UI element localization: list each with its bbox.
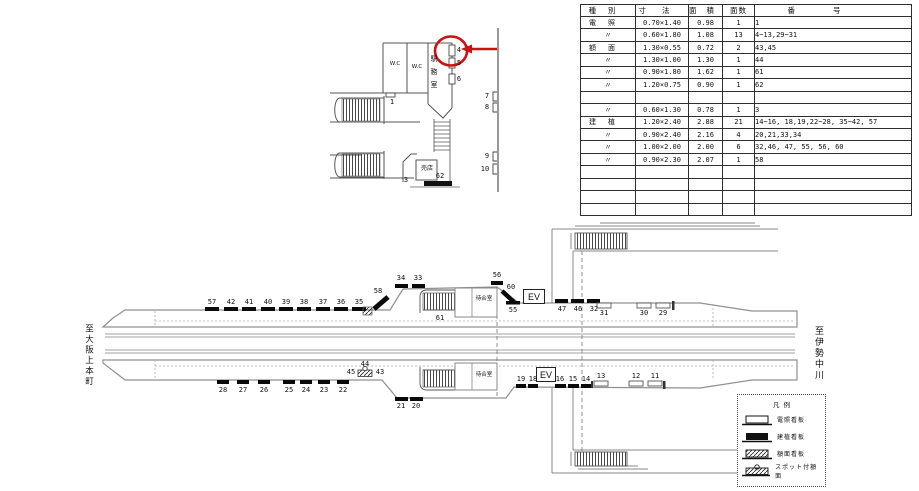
- table-cell: 〃: [581, 66, 636, 78]
- destination-label-right: 至伊勢中川: [813, 326, 822, 381]
- legend-label: スポット付額面: [775, 462, 821, 480]
- sign-label-32: 32: [590, 306, 598, 313]
- sign-label-8: 8: [485, 104, 489, 111]
- sign-label-1: 1: [390, 99, 394, 106]
- sign-label-5: 5: [457, 60, 461, 67]
- sign-label-40: 40: [264, 299, 272, 306]
- sign-label-7: 7: [485, 93, 489, 100]
- table-cell: 0.60×1.80: [636, 29, 689, 41]
- concourse-stairs-lower: [335, 151, 384, 179]
- sign-label-22: 22: [339, 387, 347, 394]
- sign-label-24: 24: [302, 387, 310, 394]
- table-cell: 額面: [581, 41, 636, 53]
- legend-item-spotlight: スポット付額面: [742, 462, 821, 479]
- legend-item-standing: 建植看板: [742, 428, 821, 445]
- station-sign-layout-drawing: 種別 寸法 面積 面数 番号 電照0.70×1.400.9811〃0.60×1.…: [0, 0, 919, 491]
- legend-title: 凡例: [746, 399, 821, 409]
- table-cell: [636, 91, 689, 103]
- waiting-room-bottom-label: 待合室: [476, 373, 493, 379]
- table-row: 〃0.90×1.801.62161: [581, 66, 912, 78]
- table-cell: [755, 203, 912, 215]
- table-cell: 〃: [581, 29, 636, 41]
- table-cell: [723, 191, 755, 203]
- edge-sign-marks-7-10: [493, 92, 497, 174]
- table-cell: 0.90×2.30: [636, 153, 689, 165]
- table-cell: 4~13,29~31: [755, 29, 912, 41]
- sign-58-diagonal-bar: [374, 297, 388, 309]
- sign-label-33: 33: [414, 275, 422, 282]
- room-label-kiosk: 売店: [421, 166, 433, 172]
- table-header-type: 種別: [581, 5, 636, 17]
- sign-label-11: 11: [651, 373, 659, 380]
- frame-sign-icon: [742, 448, 772, 460]
- tick-mark: [672, 301, 675, 310]
- elevator-box-bottom: EV: [536, 367, 556, 382]
- table-cell: [723, 178, 755, 190]
- table-cell: 2: [723, 41, 755, 53]
- sign-label-42: 42: [227, 299, 235, 306]
- table-cell: 13: [723, 29, 755, 41]
- room-label-wc-2: W.C: [412, 65, 422, 71]
- destination-label-left: 至大阪上本町: [84, 324, 93, 387]
- sign-label-12: 12: [632, 373, 640, 380]
- table-cell: 43,45: [755, 41, 912, 53]
- table-cell: 1.62: [689, 66, 723, 78]
- sign-label-45: 45: [347, 369, 355, 376]
- table-cell: [689, 191, 723, 203]
- table-row: 額面1.30×0.550.72243,45: [581, 41, 912, 53]
- table-cell: 1: [723, 153, 755, 165]
- table-cell: [581, 166, 636, 178]
- sign-58-corner-panel: [363, 307, 372, 315]
- table-cell: [689, 166, 723, 178]
- sign-label-55: 55: [509, 307, 517, 314]
- table-cell: 1.00×2.00: [636, 141, 689, 153]
- table-cell: [755, 91, 912, 103]
- table-cell: 建植: [581, 116, 636, 128]
- sign-label-62: 62: [436, 173, 444, 180]
- legend-box: 凡例 電照看板 建植看板 額面看板: [737, 394, 826, 487]
- table-cell: [689, 91, 723, 103]
- table-cell: 1: [723, 104, 755, 116]
- sign-label-13: 13: [597, 373, 605, 380]
- table-cell: 44: [755, 54, 912, 66]
- concourse-stairs-upper: [335, 96, 384, 124]
- legend-item-illuminated: 電照看板: [742, 411, 821, 428]
- table-cell: 0.90: [689, 79, 723, 91]
- sign-label-37: 37: [319, 299, 327, 306]
- sign-label-27: 27: [239, 387, 247, 394]
- table-cell: [723, 166, 755, 178]
- sign-label-58: 58: [374, 288, 382, 295]
- sign-label-16: 16: [556, 376, 564, 383]
- sign-label-30: 30: [640, 310, 648, 317]
- section-dashed-lines: [497, 251, 582, 451]
- table-row: [581, 166, 912, 178]
- table-cell: 20,21,33,34: [755, 128, 912, 140]
- waiting-room-top: [455, 288, 497, 317]
- table-cell: 2.16: [689, 128, 723, 140]
- table-cell: [636, 191, 689, 203]
- table-cell: 4: [723, 128, 755, 140]
- table-cell: 1.30: [689, 54, 723, 66]
- sign-label-19: 19: [517, 376, 525, 383]
- table-row: 〃1.30×1.001.30144: [581, 54, 912, 66]
- sign-label-21: 21: [397, 403, 405, 410]
- table-cell: 32,46, 47, 55, 56, 60: [755, 141, 912, 153]
- sign-label-29: 29: [659, 310, 667, 317]
- table-row: [581, 203, 912, 215]
- sign-label-61: 61: [436, 315, 444, 322]
- sign-label-47: 47: [558, 306, 566, 313]
- table-row: 〃0.60×1.801.08134~13,29~31: [581, 29, 912, 41]
- platform-top-stairs-61: [420, 290, 460, 313]
- table-cell: [689, 203, 723, 215]
- table-header-row: 種別 寸法 面積 面数 番号: [581, 5, 912, 17]
- table-cell: 1: [723, 54, 755, 66]
- table-cell: 0.60×1.30: [636, 104, 689, 116]
- table-cell: 21: [723, 116, 755, 128]
- table-cell: 0.78: [689, 104, 723, 116]
- table-cell: 58: [755, 153, 912, 165]
- sign-label-60: 60: [507, 284, 515, 291]
- table-cell: [581, 203, 636, 215]
- table-cell: 1.30×0.55: [636, 41, 689, 53]
- table-cell: 2.00: [689, 141, 723, 153]
- sign-label-4: 4: [457, 47, 461, 54]
- overpass-bottom-stairs: [575, 452, 627, 466]
- table-cell: [636, 178, 689, 190]
- sign-label-9: 9: [485, 153, 489, 160]
- table-row: 〃0.90×2.302.07158: [581, 153, 912, 165]
- table-cell: [755, 191, 912, 203]
- table-cell: 〃: [581, 104, 636, 116]
- sign-label-36: 36: [337, 299, 345, 306]
- sign-label-46: 46: [574, 306, 582, 313]
- table-cell: 1.30×1.00: [636, 54, 689, 66]
- table-cell: 1: [723, 79, 755, 91]
- sign-label-20: 20: [412, 403, 420, 410]
- sign-label-6: 6: [457, 76, 461, 83]
- table-cell: [755, 178, 912, 190]
- sign-label-25: 25: [285, 387, 293, 394]
- table-cell: 電照: [581, 17, 636, 29]
- sign-label-3: 3: [404, 177, 408, 184]
- table-header-count: 面数: [723, 5, 755, 17]
- legend-label: 額面看板: [777, 449, 805, 458]
- table-cell: 〃: [581, 141, 636, 153]
- table-cell: 0.70×1.40: [636, 17, 689, 29]
- table-row: 〃1.00×2.002.00632,46, 47, 55, 56, 60: [581, 141, 912, 153]
- table-cell: 〃: [581, 54, 636, 66]
- table-row: 電照0.70×1.400.9811: [581, 17, 912, 29]
- waiting-room-top-label: 待合室: [476, 297, 493, 303]
- sign-label-31: 31: [600, 310, 608, 317]
- table-cell: [581, 178, 636, 190]
- sign-label-23: 23: [320, 387, 328, 394]
- table-header-area: 面積: [689, 5, 723, 17]
- illuminated-sign-icon: [742, 414, 772, 426]
- table-cell: 0.98: [689, 17, 723, 29]
- table-cell: [636, 166, 689, 178]
- sign-table-body: 電照0.70×1.400.9811〃0.60×1.801.08134~13,29…: [581, 17, 912, 216]
- table-cell: 61: [755, 66, 912, 78]
- table-cell: [689, 178, 723, 190]
- table-header-size: 寸法: [636, 5, 689, 17]
- table-cell: [723, 91, 755, 103]
- tick-mark: [663, 381, 666, 389]
- table-row: [581, 191, 912, 203]
- platform-bottom-stairs: [420, 367, 460, 390]
- table-cell: [723, 203, 755, 215]
- legend-label: 電照看板: [777, 415, 805, 424]
- sign-label-44: 44: [361, 361, 369, 368]
- room-label-station-office: 駅務室: [430, 55, 437, 94]
- table-cell: 0.72: [689, 41, 723, 53]
- legend-label: 建植看板: [777, 432, 805, 441]
- table-row: 〃1.20×0.750.90162: [581, 79, 912, 91]
- table-header-numbers: 番号: [755, 5, 912, 17]
- sign-label-39: 39: [282, 299, 290, 306]
- tick-mark: [591, 381, 593, 388]
- table-cell: 〃: [581, 128, 636, 140]
- table-cell: [581, 91, 636, 103]
- sign-label-35: 35: [355, 299, 363, 306]
- table-row: 建植1.20×2.402.882114~16, 18,19,22~28, 35~…: [581, 116, 912, 128]
- table-cell: 2.07: [689, 153, 723, 165]
- sign-label-15: 15: [569, 376, 577, 383]
- table-cell: 14~16, 18,19,22~28, 35~42, 57: [755, 116, 912, 128]
- table-cell: 1: [755, 17, 912, 29]
- sign-label-34: 34: [397, 275, 405, 282]
- table-cell: [636, 203, 689, 215]
- sign-label-41: 41: [245, 299, 253, 306]
- table-cell: 〃: [581, 79, 636, 91]
- table-row: [581, 178, 912, 190]
- track-lines: [105, 334, 795, 353]
- sign-table: 種別 寸法 面積 面数 番号 電照0.70×1.400.9811〃0.60×1.…: [580, 4, 912, 216]
- sign-label-10: 10: [481, 166, 489, 173]
- sign-label-14: 14: [582, 376, 590, 383]
- sign-label-43: 43: [376, 369, 384, 376]
- sign-label-28: 28: [219, 387, 227, 394]
- sign-1-box: [386, 93, 395, 97]
- overpass-top-stairs: [575, 233, 627, 249]
- standing-sign-icon: [742, 431, 772, 443]
- table-row: 〃0.60×1.300.7813: [581, 104, 912, 116]
- sign-62-bar: [424, 181, 452, 186]
- table-cell: 62: [755, 79, 912, 91]
- table-cell: [755, 166, 912, 178]
- table-cell: 1.08: [689, 29, 723, 41]
- table-cell: 1: [723, 66, 755, 78]
- table-cell: 2.88: [689, 116, 723, 128]
- table-cell: 1.20×2.40: [636, 116, 689, 128]
- elevator-box-top: EV: [523, 289, 545, 304]
- table-cell: 0.90×1.80: [636, 66, 689, 78]
- room-label-wc-1: W.C: [390, 62, 400, 68]
- legend-item-frame: 額面看板: [742, 445, 821, 462]
- sign-label-26: 26: [260, 387, 268, 394]
- spotlight-frame-sign-icon: [742, 464, 770, 477]
- table-cell: 〃: [581, 153, 636, 165]
- sign-label-57: 57: [208, 299, 216, 306]
- table-row: [581, 91, 912, 103]
- sign-label-56: 56: [493, 272, 501, 279]
- table-cell: 3: [755, 104, 912, 116]
- sign-label-38: 38: [300, 299, 308, 306]
- table-cell: 0.90×2.40: [636, 128, 689, 140]
- top-back-sign-bars: [205, 307, 366, 311]
- table-cell: 1: [723, 17, 755, 29]
- top-right-sign-bars: [555, 299, 600, 303]
- table-cell: [581, 191, 636, 203]
- table-row: 〃0.90×2.402.16420,21,33,34: [581, 128, 912, 140]
- table-cell: 6: [723, 141, 755, 153]
- table-cell: 1.20×0.75: [636, 79, 689, 91]
